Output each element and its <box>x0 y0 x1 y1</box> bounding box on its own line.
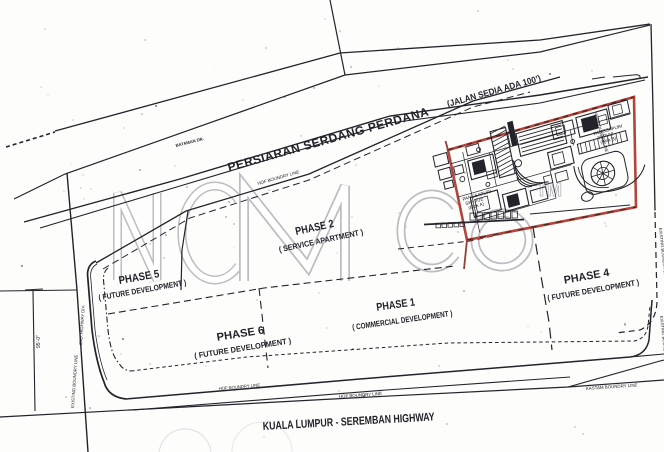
svg-text:95’-0”: 95’-0” <box>36 335 42 348</box>
